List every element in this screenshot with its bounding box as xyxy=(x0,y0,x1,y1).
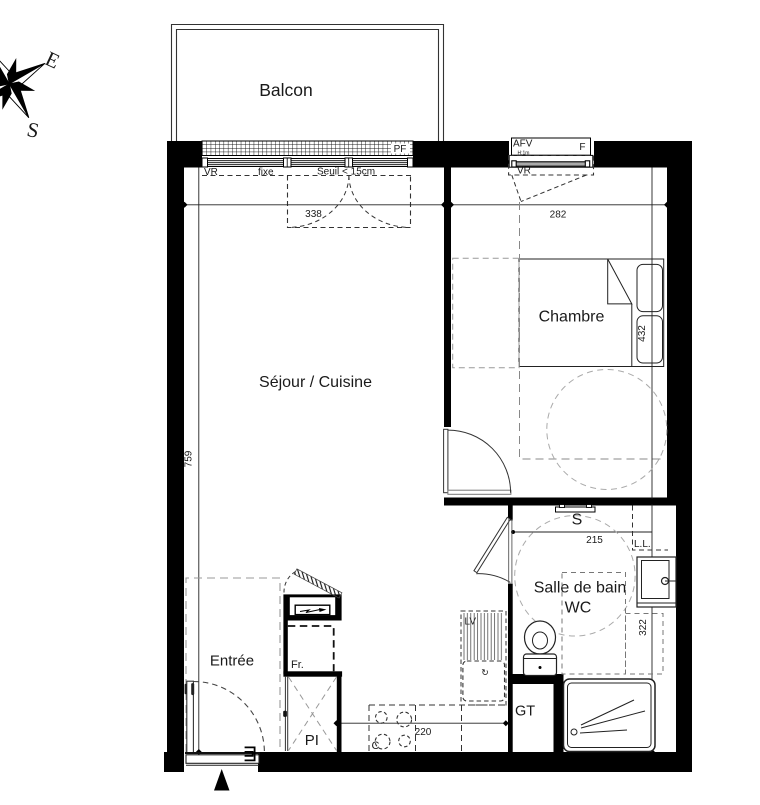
svg-text:432: 432 xyxy=(637,325,648,342)
svg-text:Balcon: Balcon xyxy=(259,80,313,100)
svg-text:AFV: AFV xyxy=(513,139,533,150)
svg-text:C: C xyxy=(372,740,380,752)
svg-text:PF: PF xyxy=(394,144,407,155)
svg-text:↻: ↻ xyxy=(481,668,489,678)
svg-text:GT: GT xyxy=(515,704,535,720)
svg-text:WC: WC xyxy=(565,600,592,617)
svg-text:759: 759 xyxy=(184,450,195,467)
svg-text:322: 322 xyxy=(638,619,649,636)
svg-text:Séjour / Cuisine: Séjour / Cuisine xyxy=(259,374,372,391)
svg-text:Salle de bain: Salle de bain xyxy=(534,580,627,597)
svg-text:L.L.: L.L. xyxy=(634,539,651,550)
svg-text:Fr.: Fr. xyxy=(291,659,304,671)
svg-text:215: 215 xyxy=(586,535,603,546)
svg-text:S: S xyxy=(572,512,583,529)
svg-text:338: 338 xyxy=(305,209,322,220)
svg-text:282: 282 xyxy=(550,210,567,221)
svg-text:F: F xyxy=(579,142,585,153)
svg-text:Entrée: Entrée xyxy=(210,653,254,670)
svg-text:VR: VR xyxy=(204,167,218,178)
svg-text:PI: PI xyxy=(305,732,319,749)
svg-text:fixe: fixe xyxy=(258,167,274,178)
svg-text:VR: VR xyxy=(517,166,531,177)
svg-text:220: 220 xyxy=(415,727,432,738)
svg-text:Chambre: Chambre xyxy=(539,309,605,326)
